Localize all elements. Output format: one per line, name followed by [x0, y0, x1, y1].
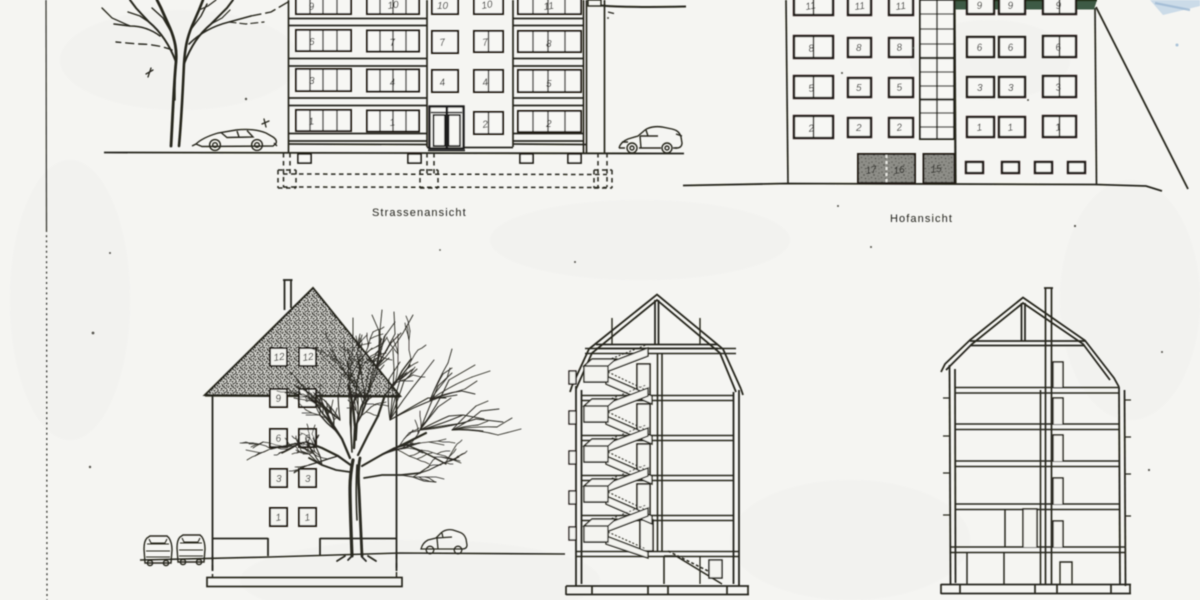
- svg-text:11: 11: [543, 1, 555, 13]
- svg-text:3: 3: [977, 83, 983, 94]
- svg-text:3: 3: [1008, 83, 1014, 94]
- svg-text:Strassenansicht: Strassenansicht: [372, 207, 467, 219]
- svg-text:10: 10: [387, 0, 400, 12]
- svg-text:12: 12: [273, 351, 286, 364]
- svg-text:3: 3: [309, 76, 315, 87]
- svg-text:10: 10: [437, 1, 449, 12]
- svg-text:5: 5: [546, 79, 552, 90]
- svg-text:2: 2: [545, 119, 552, 130]
- svg-text:12: 12: [302, 351, 315, 364]
- svg-text:11: 11: [805, 0, 817, 13]
- svg-text:Hofansicht: Hofansicht: [890, 213, 953, 225]
- svg-text:16: 16: [893, 164, 906, 177]
- svg-text:6: 6: [309, 37, 315, 48]
- svg-text:2: 2: [855, 123, 862, 134]
- svg-text:15: 15: [930, 163, 943, 176]
- svg-text:5: 5: [856, 83, 862, 94]
- svg-text:10: 10: [481, 0, 494, 12]
- svg-text:11: 11: [854, 1, 866, 13]
- svg-text:3: 3: [276, 474, 282, 485]
- svg-text:8: 8: [546, 39, 552, 50]
- svg-text:17: 17: [865, 164, 878, 177]
- svg-text:8: 8: [856, 43, 862, 54]
- svg-text:3: 3: [305, 474, 311, 485]
- svg-text:11: 11: [895, 1, 907, 13]
